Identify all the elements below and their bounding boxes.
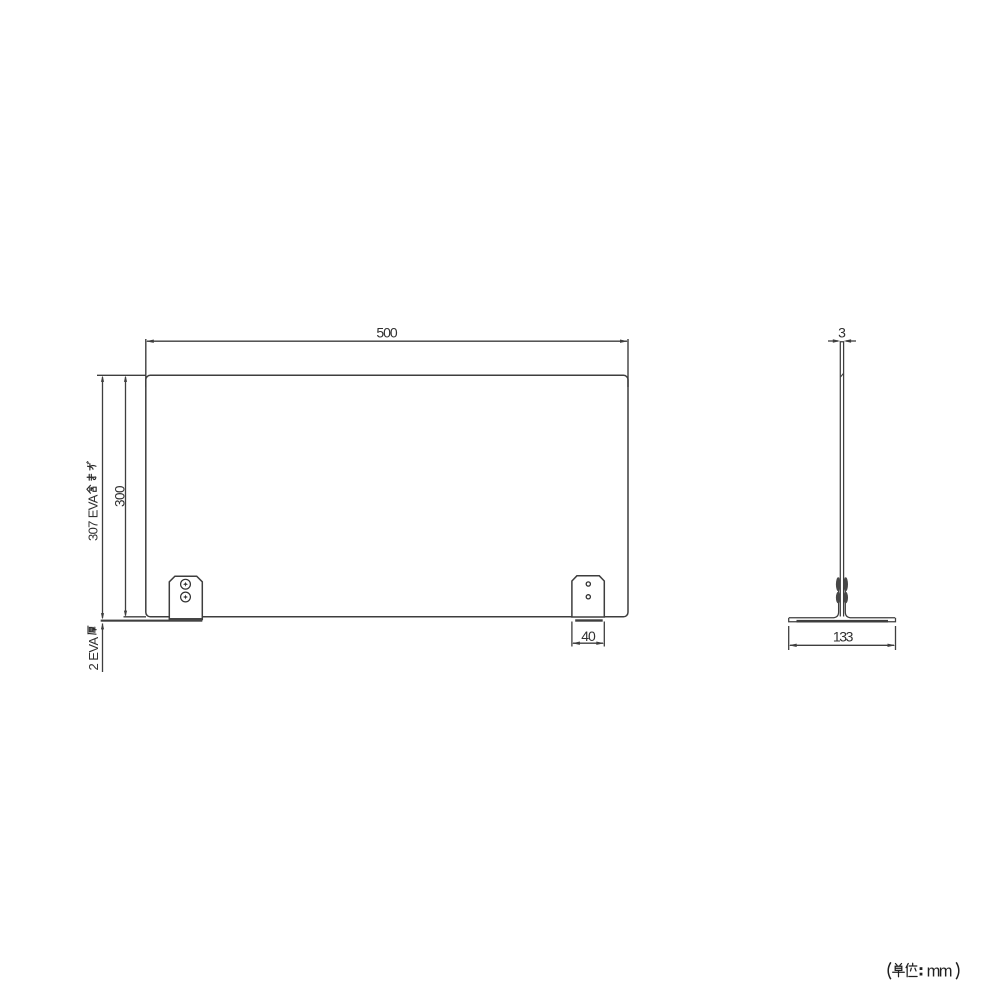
svg-text:2 EVA: 2 EVA [86,636,101,670]
svg-text:40: 40 [581,628,596,644]
svg-text:500: 500 [376,325,398,341]
svg-text:mm: mm [927,963,952,981]
svg-text:307 EVA: 307 EVA [86,494,101,541]
svg-text:300: 300 [112,486,127,507]
svg-text:3: 3 [838,324,846,340]
svg-text:133: 133 [833,628,854,644]
